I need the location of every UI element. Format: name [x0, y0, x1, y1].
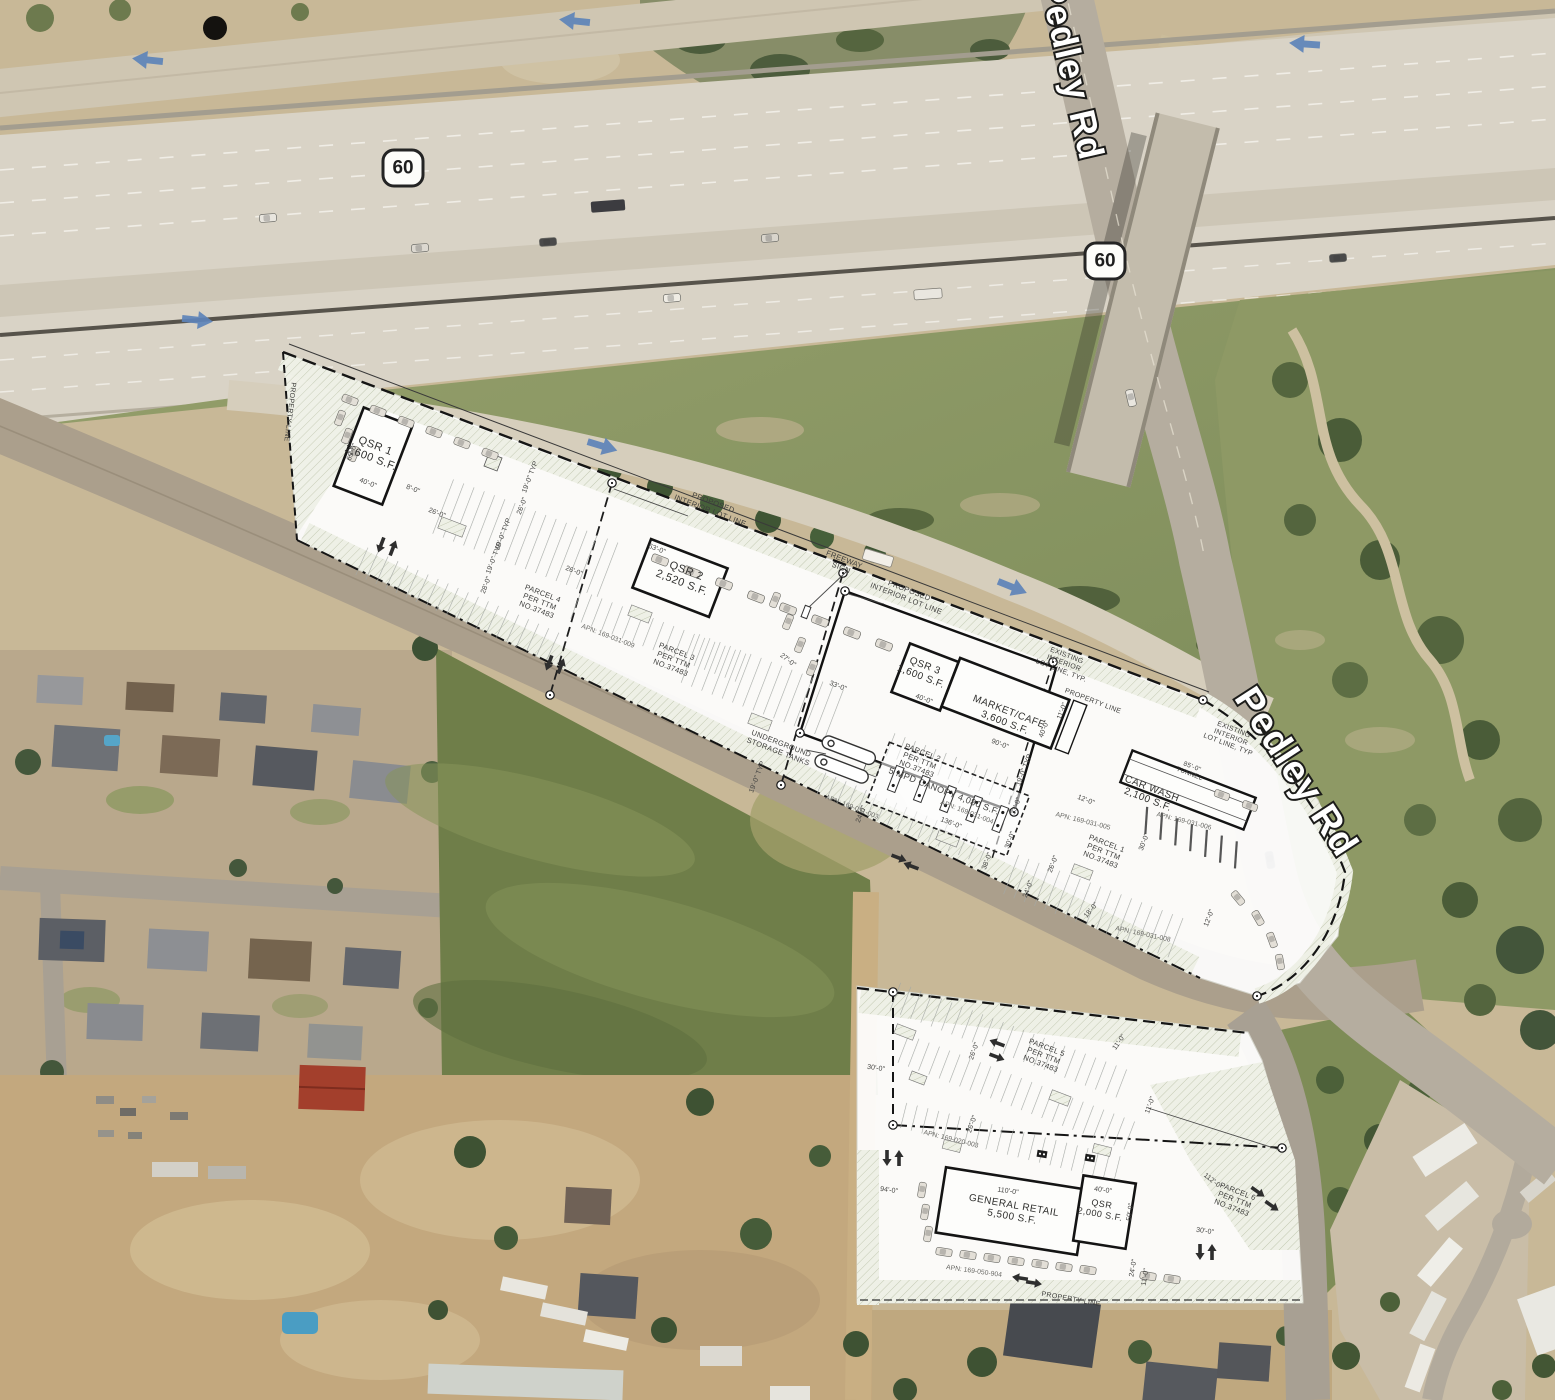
route-shield-number: 60 — [1094, 251, 1115, 272]
route-shield-number: 60 — [392, 158, 413, 179]
route-60-shield-west: 60 — [383, 150, 423, 186]
lower-site-plan: PARCEL 5PER TTMNO.37483PARCEL 6PER TTMNO… — [857, 981, 1303, 1307]
map-canvas: PARCEL 4PER TTMNO.37483PARCEL 3PER TTMNO… — [0, 0, 1555, 1400]
aerial-site-plan-map: PARCEL 4PER TTMNO.37483PARCEL 3PER TTMNO… — [0, 0, 1555, 1400]
pool — [282, 1312, 318, 1334]
route-60-shield-east: 60 — [1085, 243, 1125, 279]
pool — [104, 735, 120, 746]
